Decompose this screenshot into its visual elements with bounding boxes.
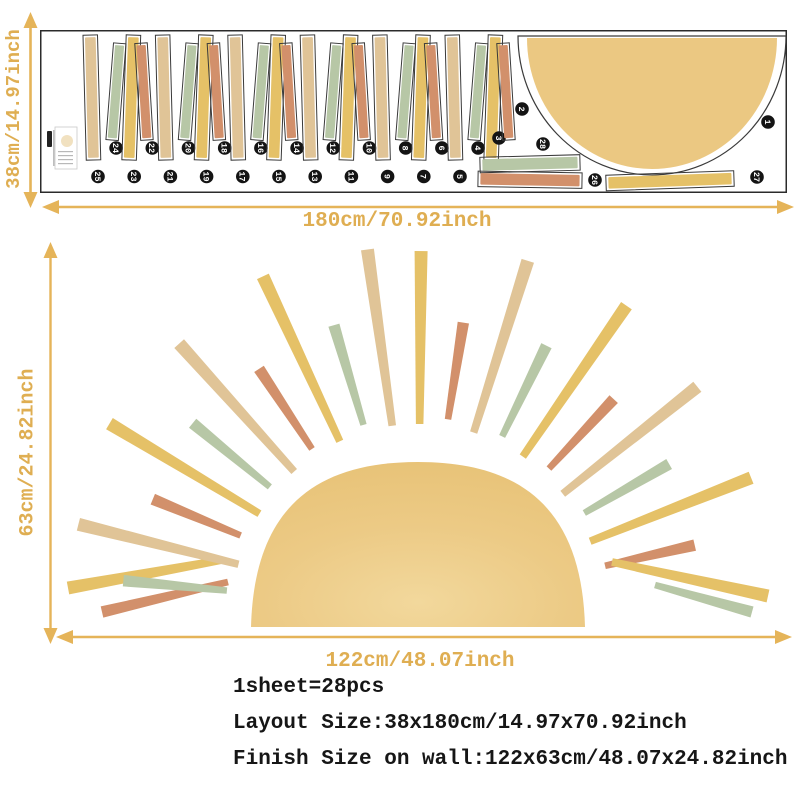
svg-text:9: 9	[382, 174, 392, 179]
svg-text:13: 13	[309, 171, 319, 181]
piece-number-badge: 19	[200, 170, 214, 184]
arrowhead-down-icon	[24, 192, 38, 208]
piece-number-badge: 26	[588, 173, 602, 187]
piece-number-badge: 3	[492, 131, 506, 145]
svg-text:6: 6	[436, 145, 446, 150]
svg-text:15: 15	[273, 171, 283, 181]
piece-number-badge: 2	[515, 102, 529, 116]
piece-number-badge: 14	[290, 141, 304, 155]
svg-text:14: 14	[291, 143, 301, 153]
piece-number-badge: 1	[761, 115, 775, 129]
piece-number-badge: 11	[345, 170, 359, 184]
piece-number-badge: 24	[109, 141, 123, 155]
svg-text:18: 18	[219, 143, 229, 153]
svg-text:4: 4	[472, 145, 482, 150]
wall-height-label: 63cm/24.82inch	[17, 377, 40, 537]
sun-ray	[361, 249, 396, 427]
piece-number-badge: 21	[164, 170, 178, 184]
piece-number-badge: 9	[381, 170, 395, 184]
sun-ray	[470, 259, 534, 434]
svg-text:27: 27	[751, 172, 761, 182]
svg-text:5: 5	[454, 174, 464, 179]
arrowhead-left-icon	[56, 630, 73, 644]
svg-text:26: 26	[589, 175, 599, 185]
svg-text:16: 16	[255, 143, 265, 153]
piece-number-badge: 12	[327, 141, 341, 155]
piece-number-badge: 5	[453, 170, 467, 184]
svg-text:11: 11	[345, 171, 355, 181]
sun-dome	[251, 462, 585, 627]
sticker-sheet-layout: 2524232221201918171615141312111098765432…	[40, 30, 787, 193]
piece-number-badge: 28	[536, 137, 550, 151]
svg-text:22: 22	[146, 143, 156, 153]
piece-number-badge: 20	[182, 141, 196, 155]
spec-layout-size: Layout Size:38x180cm/14.97x70.92inch	[233, 712, 788, 735]
svg-text:25: 25	[92, 171, 102, 181]
piece-number-badge: 27	[750, 170, 764, 184]
piece-number-badge: 25	[91, 170, 105, 184]
sun-ray	[445, 322, 469, 420]
svg-text:7: 7	[418, 174, 428, 179]
svg-text:21: 21	[164, 171, 174, 181]
svg-text:24: 24	[110, 143, 120, 153]
svg-text:10: 10	[363, 143, 373, 153]
piece-number-badge: 16	[254, 141, 268, 155]
piece-number-badge: 7	[417, 170, 431, 184]
wall-width-arrow	[56, 628, 792, 646]
sun-ray	[257, 274, 343, 443]
piece-number-badge: 8	[399, 141, 413, 155]
sun-ray	[415, 251, 428, 424]
arrowhead-right-icon	[777, 200, 794, 214]
svg-text:23: 23	[128, 171, 138, 181]
spec-text-block: 1sheet=28pcs Layout Size:38x180cm/14.97x…	[233, 676, 788, 771]
piece-number-badge: 23	[127, 170, 141, 184]
sun-ray	[328, 324, 366, 426]
piece-number-badge: 10	[363, 141, 377, 155]
sun-ray	[106, 418, 261, 517]
piece-number-badge: 13	[308, 170, 322, 184]
svg-text:12: 12	[327, 143, 337, 153]
piece-number-badge: 6	[435, 141, 449, 155]
svg-text:19: 19	[201, 171, 211, 181]
spec-finish-size: Finish Size on wall:122x63cm/48.07x24.82…	[233, 748, 788, 771]
assembled-sun-preview	[50, 243, 790, 638]
svg-text:20: 20	[182, 143, 192, 153]
piece-number-badge: 4	[471, 141, 485, 155]
arrowhead-up-icon	[24, 12, 38, 28]
sheet-height-label: 38cm/14.97inch	[3, 29, 25, 189]
spec-pieces: 1sheet=28pcs	[233, 676, 788, 699]
svg-text:2: 2	[516, 106, 526, 111]
svg-text:28: 28	[537, 139, 547, 149]
svg-text:17: 17	[237, 171, 247, 181]
sun-ray	[589, 472, 754, 545]
piece-number-badge: 18	[218, 141, 232, 155]
wall-width-label: 122cm/48.07inch	[220, 650, 620, 673]
svg-text:1: 1	[762, 119, 772, 124]
svg-text:3: 3	[493, 135, 503, 140]
product-size-diagram: 38cm/14.97inch 2524232221201918171615141…	[0, 0, 800, 800]
sun-ray	[151, 494, 242, 539]
piece-number-badge: 17	[236, 170, 250, 184]
svg-text:8: 8	[400, 145, 410, 150]
piece-number-badge: 15	[272, 170, 286, 184]
arrowhead-right-icon	[775, 630, 792, 644]
arrowhead-left-icon	[42, 200, 59, 214]
sheet-width-label: 180cm/70.92inch	[197, 210, 597, 233]
piece-number-badge: 22	[146, 141, 160, 155]
